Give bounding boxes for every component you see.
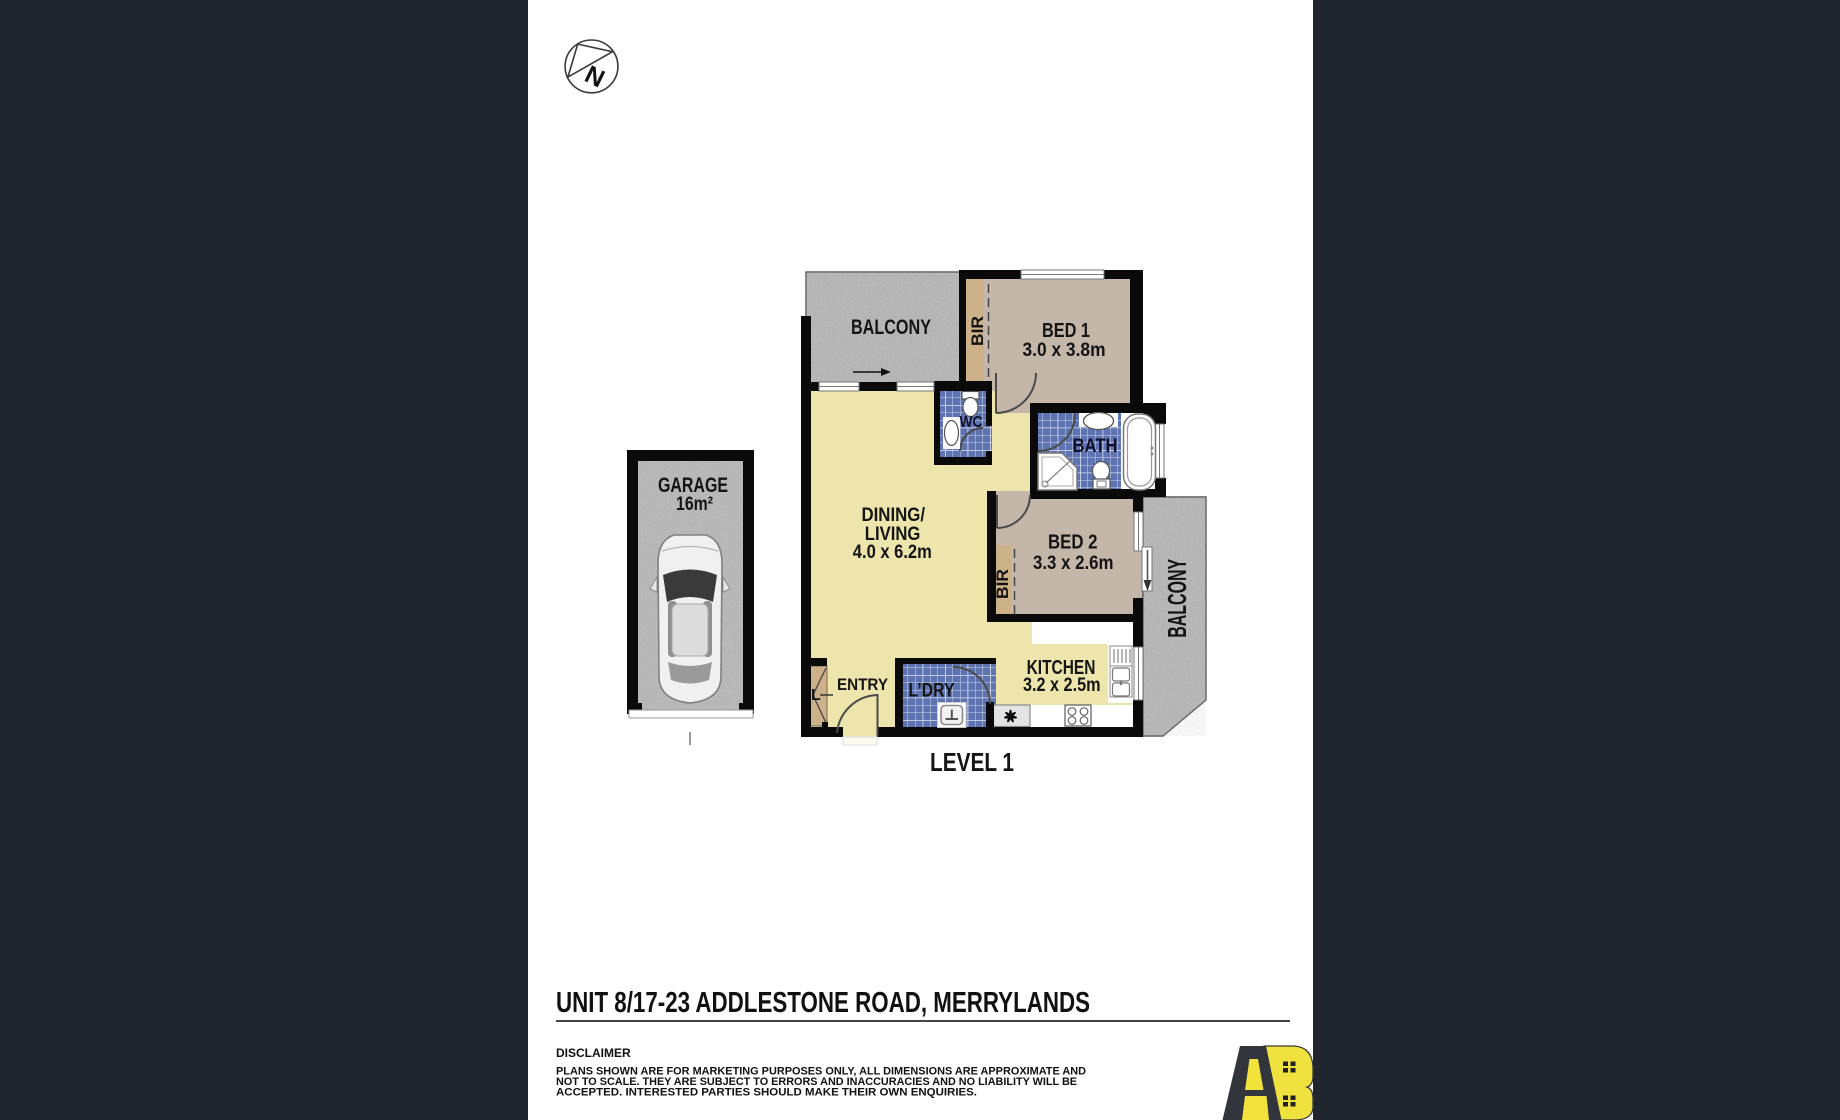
svg-text:3.3 x 2.6m: 3.3 x 2.6m xyxy=(1033,553,1114,574)
svg-text:BALCONY: BALCONY xyxy=(1162,559,1192,638)
svg-text:UNIT 8/17-23 ADDLESTONE ROAD,: UNIT 8/17-23 ADDLESTONE ROAD, MERRYLANDS xyxy=(556,987,1090,1019)
svg-text:BIR: BIR xyxy=(968,316,987,346)
svg-text:ACCEPTED. INTERESTED PARTIES S: ACCEPTED. INTERESTED PARTIES SHOULD MAKE… xyxy=(556,1087,977,1099)
svg-text:3.0 x 3.8m: 3.0 x 3.8m xyxy=(1023,340,1106,361)
svg-text:ENTRY: ENTRY xyxy=(837,675,889,694)
svg-text:DISCLAIMER: DISCLAIMER xyxy=(556,1046,631,1060)
svg-text:L’DRY: L’DRY xyxy=(909,681,955,702)
svg-text:3.2 x 2.5m: 3.2 x 2.5m xyxy=(1023,675,1101,696)
svg-text:WC: WC xyxy=(960,414,983,431)
svg-text:BED 1: BED 1 xyxy=(1042,320,1090,342)
svg-text:BIR: BIR xyxy=(993,569,1012,599)
svg-text:4.0 x 6.2m: 4.0 x 6.2m xyxy=(853,542,932,563)
svg-text:BALCONY: BALCONY xyxy=(851,316,931,339)
svg-text:DINING/: DINING/ xyxy=(862,505,926,526)
svg-text:L: L xyxy=(811,687,821,704)
svg-text:BED 2: BED 2 xyxy=(1048,532,1098,554)
svg-text:16m²: 16m² xyxy=(676,494,713,515)
svg-text:LEVEL 1: LEVEL 1 xyxy=(930,747,1014,777)
svg-text:BATH: BATH xyxy=(1073,435,1118,457)
